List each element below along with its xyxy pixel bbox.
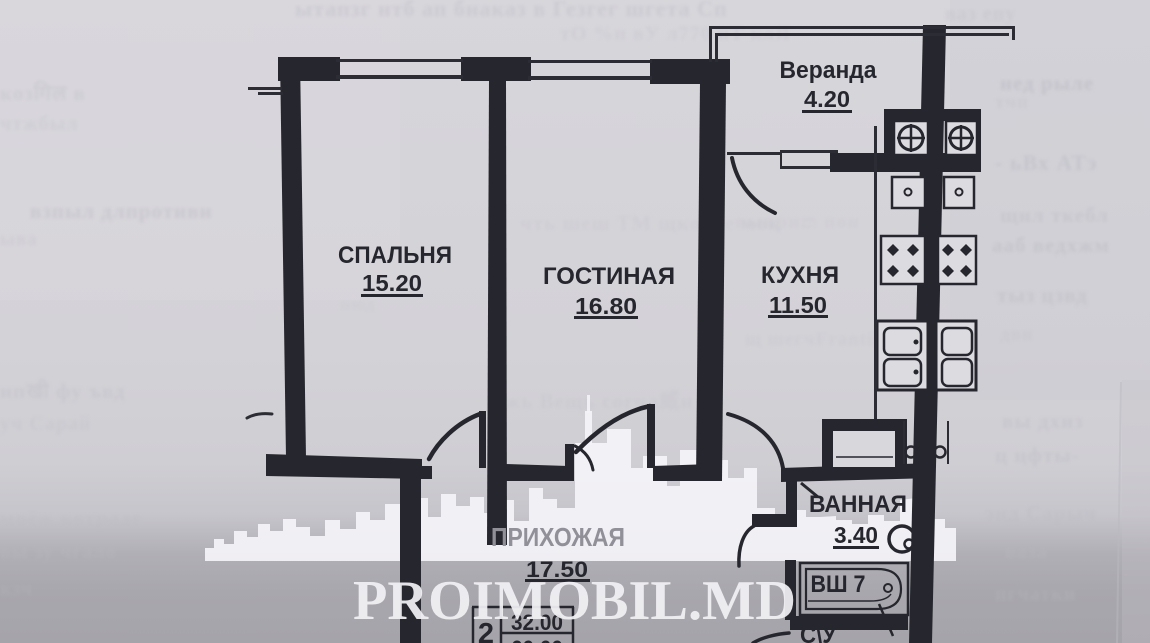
svg-text:ытапзг нтб ап бнаказ в Гезгег: ытапзг нтб ап бнаказ в Гезгег шгета Сп [295,0,728,21]
svg-text:ваза: ваза [1005,541,1048,563]
svg-text:11.50: 11.50 [769,292,827,318]
svg-text:тыз цзвд: тыз цзвд [997,283,1088,307]
svg-text:ПРИХОЖАЯ: ПРИХОЖАЯ [491,522,625,552]
svg-text:вы дхиз: вы дхиз [1002,409,1084,433]
svg-text:ц цфты-: ц цфты- [995,443,1080,467]
svg-text:выприන пон: выприන пон [735,211,860,233]
svg-text:60.00: 60.00 [511,636,563,643]
svg-text:двн: двн [1000,324,1034,345]
svg-text:вы зу чгало: вы зу чгало [0,541,117,563]
svg-text:уч Сарай: уч Сарай [0,413,91,435]
svg-text:ыва: ыва [0,229,38,250]
svg-text:СПАЛЬНЯ: СПАЛЬНЯ [338,242,452,269]
svg-text:16.80: 16.80 [575,293,637,319]
svg-text:15.20: 15.20 [362,270,422,296]
svg-text:взпыл длпротивн: взпыл длпротивн [30,199,213,223]
svg-text:- ьВх АТэ: - ьВх АТэ [995,150,1097,175]
svg-text:жь Вещь согча威н (ы: жь Вещь согча威н (ы [505,389,725,413]
svg-text:ипखी фу ъвд: ипखी фу ъвд [0,378,126,403]
svg-text:ааб ведхжм: ааб ведхжм [992,233,1110,257]
svg-text:PROIMOBIL.MD: PROIMOBIL.MD [353,570,796,632]
svg-text:4.20: 4.20 [804,86,850,112]
svg-text:Веранда: Веранда [780,57,878,84]
svg-text:С\У: С\У [800,622,837,643]
svg-text:энд Сарыч: энд Сарыч [985,501,1097,525]
svg-text:тчп: тчп [995,92,1029,113]
svg-text:ваз епу: ваз епу [945,3,1016,25]
svg-text:3.40: 3.40 [834,522,878,548]
svg-text:ГОСТИНАЯ: ГОСТИНАЯ [543,263,675,290]
svg-text:пгчатки: пгчатки [995,583,1076,605]
svg-text:кзч: кзч [0,578,33,600]
svg-text:КУХНЯ: КУХНЯ [761,262,839,289]
svg-text:ВШ 7: ВШ 7 [811,571,866,598]
svg-text:мвёж котраде: мвёж котраде [0,506,142,530]
svg-text:козगिल в: козगिल в [0,80,86,105]
svg-text:щил ткебл: щил ткебл [1000,203,1109,227]
svg-text:чтжбыл: чтжбыл [0,113,78,135]
svg-text:ВАННАЯ: ВАННАЯ [809,491,907,518]
